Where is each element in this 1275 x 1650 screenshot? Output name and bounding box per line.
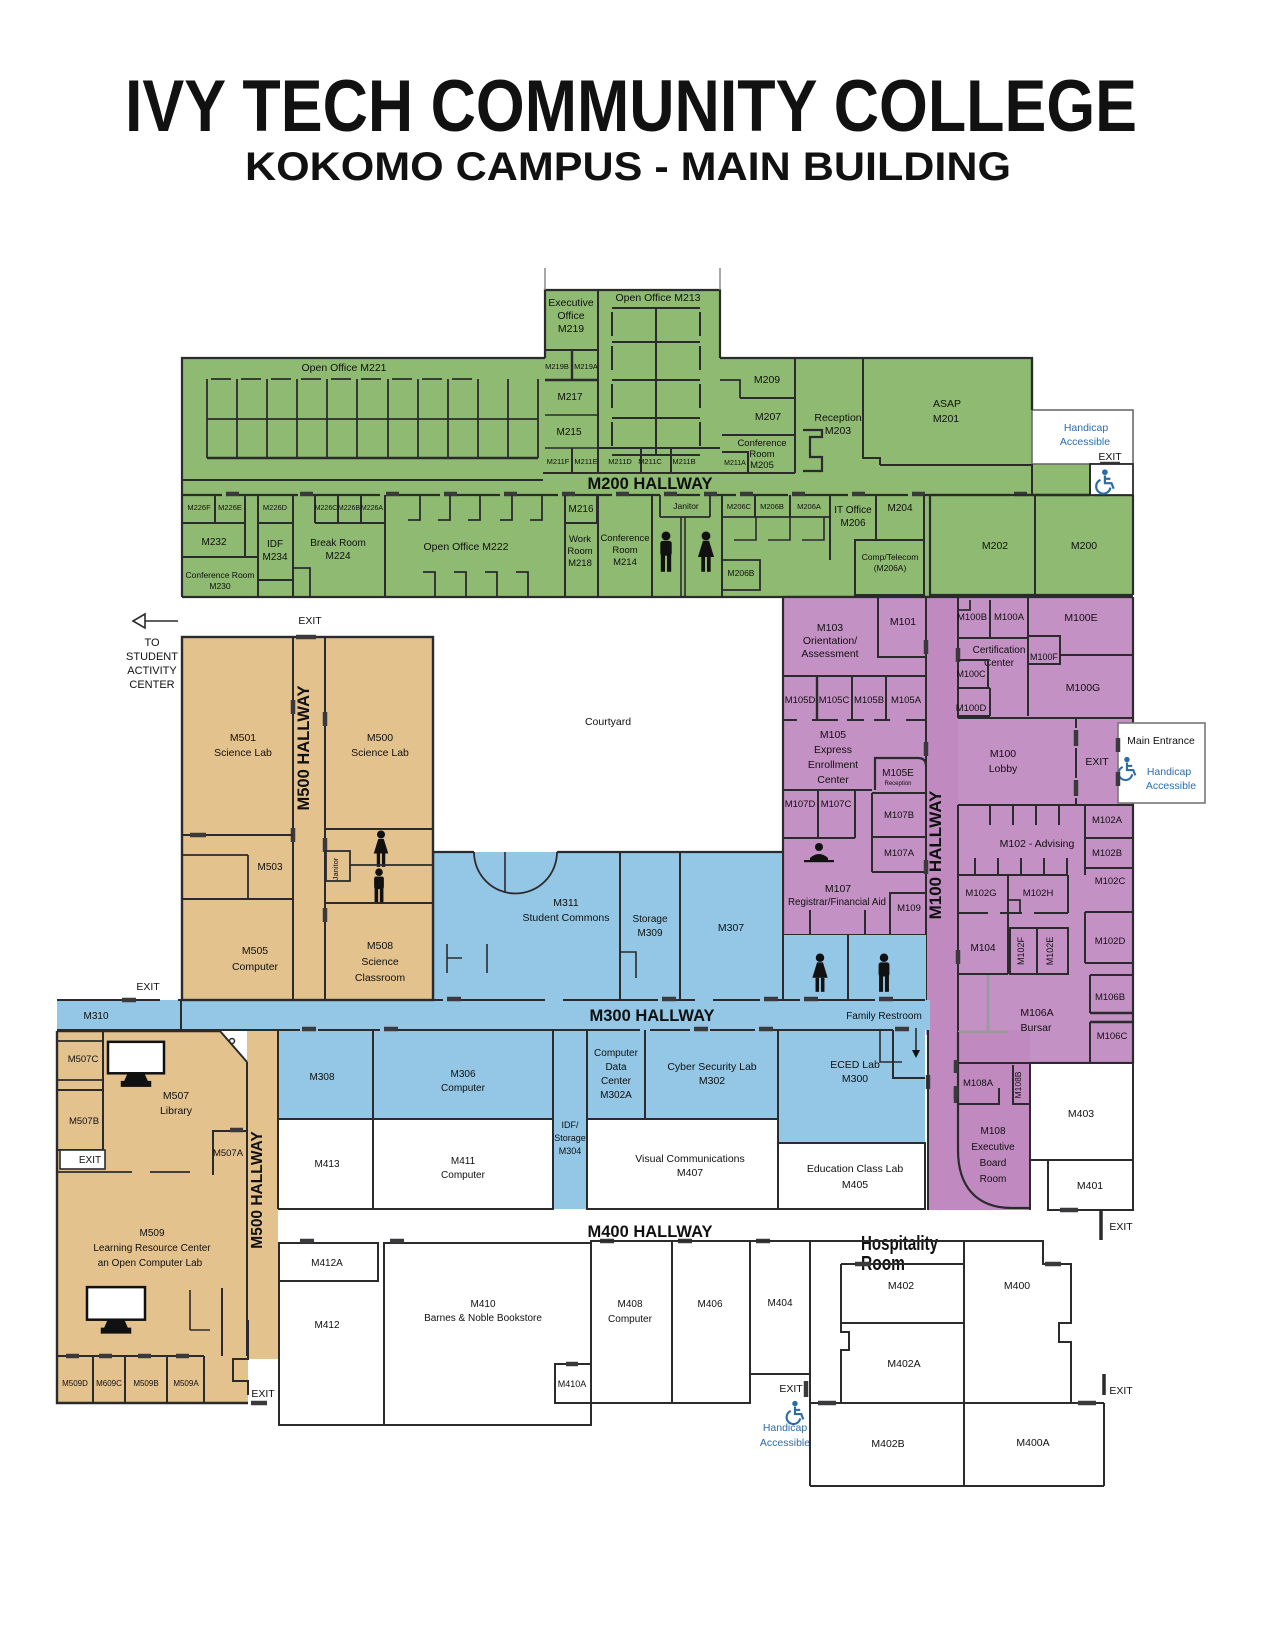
svg-text:EXIT: EXIT (1085, 756, 1109, 768)
svg-text:EXIT: EXIT (779, 1383, 803, 1395)
svg-text:Executive: Executive (971, 1142, 1015, 1153)
svg-text:Storage: Storage (554, 1133, 586, 1143)
svg-text:Janitor: Janitor (673, 501, 699, 511)
svg-text:Open Office M221: Open Office M221 (301, 362, 386, 374)
svg-text:M609C: M609C (96, 1379, 122, 1388)
svg-text:Registrar/Financial Aid: Registrar/Financial Aid (788, 897, 886, 908)
svg-text:an Open Computer Lab: an Open Computer Lab (98, 1258, 203, 1269)
svg-text:M507A: M507A (213, 1148, 244, 1159)
svg-text:M500 HALLWAY: M500 HALLWAY (249, 1131, 266, 1249)
svg-text:Conference Room: Conference Room (186, 570, 255, 580)
svg-text:Room: Room (567, 546, 592, 557)
svg-text:M104: M104 (970, 943, 995, 954)
svg-text:Janitor: Janitor (331, 857, 340, 880)
svg-text:M107: M107 (825, 883, 851, 895)
svg-text:M206B: M206B (728, 568, 755, 578)
svg-text:M204: M204 (887, 503, 912, 514)
svg-text:M106C: M106C (1097, 1031, 1128, 1042)
svg-text:ECED Lab: ECED Lab (830, 1059, 880, 1071)
svg-text:Conference: Conference (600, 533, 649, 544)
svg-text:Computer: Computer (441, 1083, 486, 1094)
svg-text:M226B: M226B (338, 505, 361, 512)
svg-text:M105: M105 (820, 729, 846, 741)
svg-text:M107A: M107A (884, 848, 915, 859)
svg-text:M103: M103 (817, 622, 843, 634)
svg-text:M102B: M102B (1092, 848, 1122, 859)
svg-text:M400A: M400A (1016, 1437, 1049, 1449)
svg-text:M203: M203 (825, 425, 851, 437)
svg-text:M403: M403 (1068, 1108, 1094, 1120)
svg-text:Bursar: Bursar (1021, 1022, 1052, 1034)
svg-text:M500: M500 (367, 732, 393, 744)
svg-text:M200: M200 (1071, 540, 1097, 552)
svg-text:M408: M408 (617, 1299, 642, 1310)
svg-text:M310: M310 (83, 1011, 108, 1022)
svg-text:M101: M101 (890, 616, 916, 628)
svg-text:M412A: M412A (311, 1258, 343, 1269)
svg-text:Accessible: Accessible (1146, 780, 1196, 792)
svg-text:Center: Center (601, 1076, 632, 1087)
svg-text:M206C: M206C (727, 502, 752, 511)
svg-text:M214: M214 (613, 557, 637, 568)
svg-text:M508: M508 (367, 940, 393, 952)
svg-text:M105C: M105C (819, 695, 850, 706)
svg-text:M412: M412 (314, 1320, 339, 1331)
svg-text:KOKOMO CAMPUS - MAIN BUILDING: KOKOMO CAMPUS - MAIN BUILDING (245, 145, 1011, 189)
svg-text:Student Commons: Student Commons (523, 912, 610, 924)
svg-text:M401: M401 (1077, 1180, 1103, 1192)
svg-text:M402A: M402A (887, 1358, 920, 1370)
svg-text:M100: M100 (990, 748, 1016, 760)
svg-text:M509A: M509A (173, 1379, 199, 1388)
svg-text:M215: M215 (556, 427, 581, 438)
svg-text:M102F: M102F (1016, 936, 1026, 965)
svg-text:M302: M302 (699, 1075, 725, 1087)
svg-text:M413: M413 (314, 1159, 339, 1170)
svg-text:Science Lab: Science Lab (214, 747, 272, 759)
svg-text:EXIT: EXIT (79, 1155, 101, 1166)
svg-text:(M206A): (M206A) (874, 563, 907, 573)
svg-text:M410: M410 (470, 1299, 495, 1310)
svg-text:Hospitality: Hospitality (861, 1233, 939, 1255)
svg-text:M503: M503 (257, 862, 282, 873)
svg-text:M406: M406 (697, 1299, 722, 1310)
svg-text:CENTER: CENTER (129, 679, 174, 691)
svg-text:Executive: Executive (548, 297, 594, 309)
svg-text:EXIT: EXIT (136, 981, 160, 993)
svg-text:M211A: M211A (724, 460, 746, 467)
svg-text:M226F: M226F (187, 503, 211, 512)
svg-text:Computer: Computer (594, 1048, 639, 1059)
svg-text:Science: Science (361, 956, 399, 968)
svg-text:EXIT: EXIT (251, 1388, 275, 1400)
svg-text:Main Entrance: Main Entrance (1127, 735, 1195, 747)
svg-text:M306: M306 (450, 1069, 475, 1080)
svg-text:M219A: M219A (574, 362, 598, 371)
svg-text:M404: M404 (767, 1298, 792, 1309)
svg-text:Reception: Reception (884, 781, 911, 787)
svg-text:M507B: M507B (69, 1116, 99, 1127)
svg-text:M211B: M211B (672, 457, 695, 466)
svg-text:IT Office: IT Office (834, 505, 872, 516)
svg-text:M105E: M105E (882, 768, 914, 779)
svg-text:Conference: Conference (737, 438, 786, 449)
svg-text:M202: M202 (982, 540, 1008, 552)
svg-text:M217: M217 (557, 392, 582, 403)
svg-text:M100F: M100F (1030, 652, 1059, 662)
svg-text:Cyber Security Lab: Cyber Security Lab (667, 1061, 756, 1073)
svg-text:M307: M307 (718, 922, 744, 934)
svg-text:ASAP: ASAP (933, 398, 961, 410)
svg-text:M218: M218 (568, 558, 592, 569)
svg-text:Certification: Certification (973, 645, 1026, 656)
svg-text:M219: M219 (558, 323, 584, 335)
svg-text:Computer: Computer (441, 1170, 486, 1181)
svg-text:M219B: M219B (545, 362, 569, 371)
svg-text:M226E: M226E (218, 503, 242, 512)
svg-text:M102A: M102A (1092, 815, 1123, 826)
svg-text:Break Room: Break Room (310, 538, 366, 549)
svg-text:Office: Office (557, 310, 584, 322)
svg-text:IVY TECH COMMUNITY COLLEGE: IVY TECH COMMUNITY COLLEGE (125, 66, 1137, 147)
svg-text:Room: Room (749, 449, 774, 460)
svg-text:M509D: M509D (62, 1379, 88, 1388)
svg-text:M226A: M226A (361, 505, 384, 512)
svg-text:M211C: M211C (638, 457, 662, 466)
svg-text:Work: Work (569, 534, 591, 545)
svg-text:M300: M300 (842, 1073, 868, 1085)
svg-text:M200 HALLWAY: M200 HALLWAY (587, 475, 712, 493)
svg-text:Data: Data (605, 1062, 627, 1073)
svg-text:M232: M232 (201, 537, 226, 548)
svg-text:Accessible: Accessible (760, 1437, 810, 1449)
svg-text:Handicap: Handicap (1064, 422, 1109, 434)
svg-text:Education Class Lab: Education Class Lab (807, 1163, 903, 1175)
svg-text:Accessible: Accessible (1060, 436, 1110, 448)
svg-text:Barnes & Noble Bookstore: Barnes & Noble Bookstore (424, 1313, 542, 1324)
svg-text:M405: M405 (842, 1179, 868, 1191)
svg-text:M100C: M100C (956, 669, 986, 679)
svg-text:M207: M207 (755, 411, 781, 423)
svg-text:M308: M308 (309, 1072, 334, 1083)
svg-text:Center: Center (817, 774, 849, 786)
svg-text:M507C: M507C (68, 1054, 99, 1065)
svg-text:EXIT: EXIT (1109, 1221, 1133, 1233)
svg-text:M505: M505 (242, 945, 268, 957)
svg-text:Board: Board (980, 1158, 1007, 1169)
svg-text:Room: Room (980, 1174, 1007, 1185)
svg-text:Lobby: Lobby (989, 763, 1018, 775)
svg-text:M109: M109 (897, 903, 921, 914)
svg-text:Open Office M222: Open Office M222 (423, 541, 508, 553)
svg-text:Express: Express (814, 744, 852, 756)
svg-text:M100D: M100D (956, 703, 987, 714)
svg-text:M100E: M100E (1064, 612, 1097, 624)
svg-text:EXIT: EXIT (298, 615, 322, 627)
svg-text:Reception: Reception (814, 412, 861, 424)
svg-text:M234: M234 (262, 552, 287, 563)
svg-text:Storage: Storage (632, 914, 667, 925)
svg-text:Learning Resource Center: Learning Resource Center (93, 1243, 211, 1254)
svg-text:Family Restroom: Family Restroom (846, 1011, 922, 1022)
svg-text:M100 HALLWAY: M100 HALLWAY (926, 790, 945, 919)
svg-text:M211E: M211E (574, 457, 597, 466)
svg-text:M209: M209 (754, 374, 780, 386)
svg-text:M102E: M102E (1045, 937, 1055, 966)
svg-text:EXIT: EXIT (1098, 451, 1122, 463)
svg-text:Enrollment: Enrollment (808, 759, 858, 771)
svg-text:M216: M216 (568, 504, 593, 515)
svg-text:Courtyard: Courtyard (585, 716, 631, 728)
svg-text:M106A: M106A (1020, 1007, 1053, 1019)
svg-text:M407: M407 (677, 1167, 703, 1179)
svg-text:M106B: M106B (1095, 992, 1125, 1003)
svg-text:Handicap: Handicap (1147, 766, 1192, 778)
svg-text:M400: M400 (1004, 1280, 1030, 1292)
svg-text:EXIT: EXIT (1109, 1385, 1133, 1397)
svg-text:M201: M201 (933, 413, 959, 425)
svg-text:M211F: M211F (547, 457, 570, 466)
svg-text:STUDENT: STUDENT (126, 651, 178, 663)
svg-text:M402B: M402B (871, 1438, 904, 1450)
svg-text:M206B: M206B (760, 502, 784, 511)
svg-text:M311: M311 (553, 897, 579, 909)
svg-text:M102C: M102C (1095, 876, 1126, 887)
svg-text:M304: M304 (559, 1146, 582, 1156)
svg-text:M105D: M105D (785, 695, 816, 706)
svg-text:Open Office M213: Open Office M213 (615, 292, 700, 304)
svg-text:Room: Room (612, 545, 637, 556)
svg-text:Handicap: Handicap (763, 1422, 808, 1434)
svg-text:Computer: Computer (608, 1314, 653, 1325)
svg-text:M206A: M206A (797, 502, 821, 511)
svg-text:M206: M206 (840, 518, 865, 529)
svg-text:M411: M411 (451, 1156, 476, 1167)
svg-text:M230: M230 (209, 581, 231, 591)
svg-text:TO: TO (144, 637, 160, 649)
svg-text:Science Lab: Science Lab (351, 747, 409, 759)
svg-text:IDF: IDF (267, 539, 283, 550)
svg-text:Comp/Telecom: Comp/Telecom (862, 552, 919, 562)
svg-text:M108: M108 (980, 1126, 1005, 1137)
svg-text:M100A: M100A (994, 612, 1025, 623)
svg-text:M105A: M105A (891, 695, 922, 706)
svg-text:M309: M309 (637, 928, 662, 939)
svg-text:Computer: Computer (232, 961, 279, 973)
svg-text:ACTIVITY: ACTIVITY (127, 665, 177, 677)
svg-text:Orientation/: Orientation/ (803, 635, 857, 647)
svg-text:M108B: M108B (1013, 1071, 1023, 1098)
svg-text:M107D: M107D (785, 799, 816, 810)
svg-text:M102 - Advising: M102 - Advising (1000, 838, 1075, 850)
svg-text:M224: M224 (325, 551, 350, 562)
svg-text:M205: M205 (750, 460, 774, 471)
svg-text:M400 HALLWAY: M400 HALLWAY (587, 1223, 712, 1241)
svg-text:M100B: M100B (957, 612, 987, 623)
svg-text:M226D: M226D (263, 503, 288, 512)
svg-text:Visual Communications: Visual Communications (635, 1153, 745, 1165)
svg-text:M108A: M108A (963, 1078, 994, 1089)
svg-text:M300 HALLWAY: M300 HALLWAY (589, 1007, 714, 1025)
svg-text:M500 HALLWAY: M500 HALLWAY (295, 685, 313, 810)
svg-text:M226C: M226C (315, 505, 338, 512)
svg-text:Classroom: Classroom (355, 972, 405, 984)
svg-text:M501: M501 (230, 732, 256, 744)
svg-text:M302A: M302A (600, 1090, 632, 1101)
svg-text:M107C: M107C (821, 799, 852, 810)
svg-text:M211D: M211D (608, 457, 632, 466)
svg-text:M107B: M107B (884, 810, 914, 821)
svg-text:M102H: M102H (1023, 888, 1054, 899)
svg-text:M102G: M102G (965, 888, 996, 899)
svg-text:Assessment: Assessment (801, 648, 858, 660)
svg-text:M509: M509 (139, 1228, 164, 1239)
svg-text:M102D: M102D (1095, 936, 1126, 947)
svg-text:M100G: M100G (1066, 682, 1100, 694)
svg-text:Library: Library (160, 1105, 193, 1117)
svg-text:M507: M507 (163, 1090, 189, 1102)
svg-text:M105B: M105B (854, 695, 884, 706)
svg-text:IDF/: IDF/ (562, 1120, 579, 1130)
svg-text:M509B: M509B (133, 1379, 158, 1388)
svg-text:M410A: M410A (558, 1379, 587, 1389)
svg-text:M402: M402 (888, 1280, 914, 1292)
